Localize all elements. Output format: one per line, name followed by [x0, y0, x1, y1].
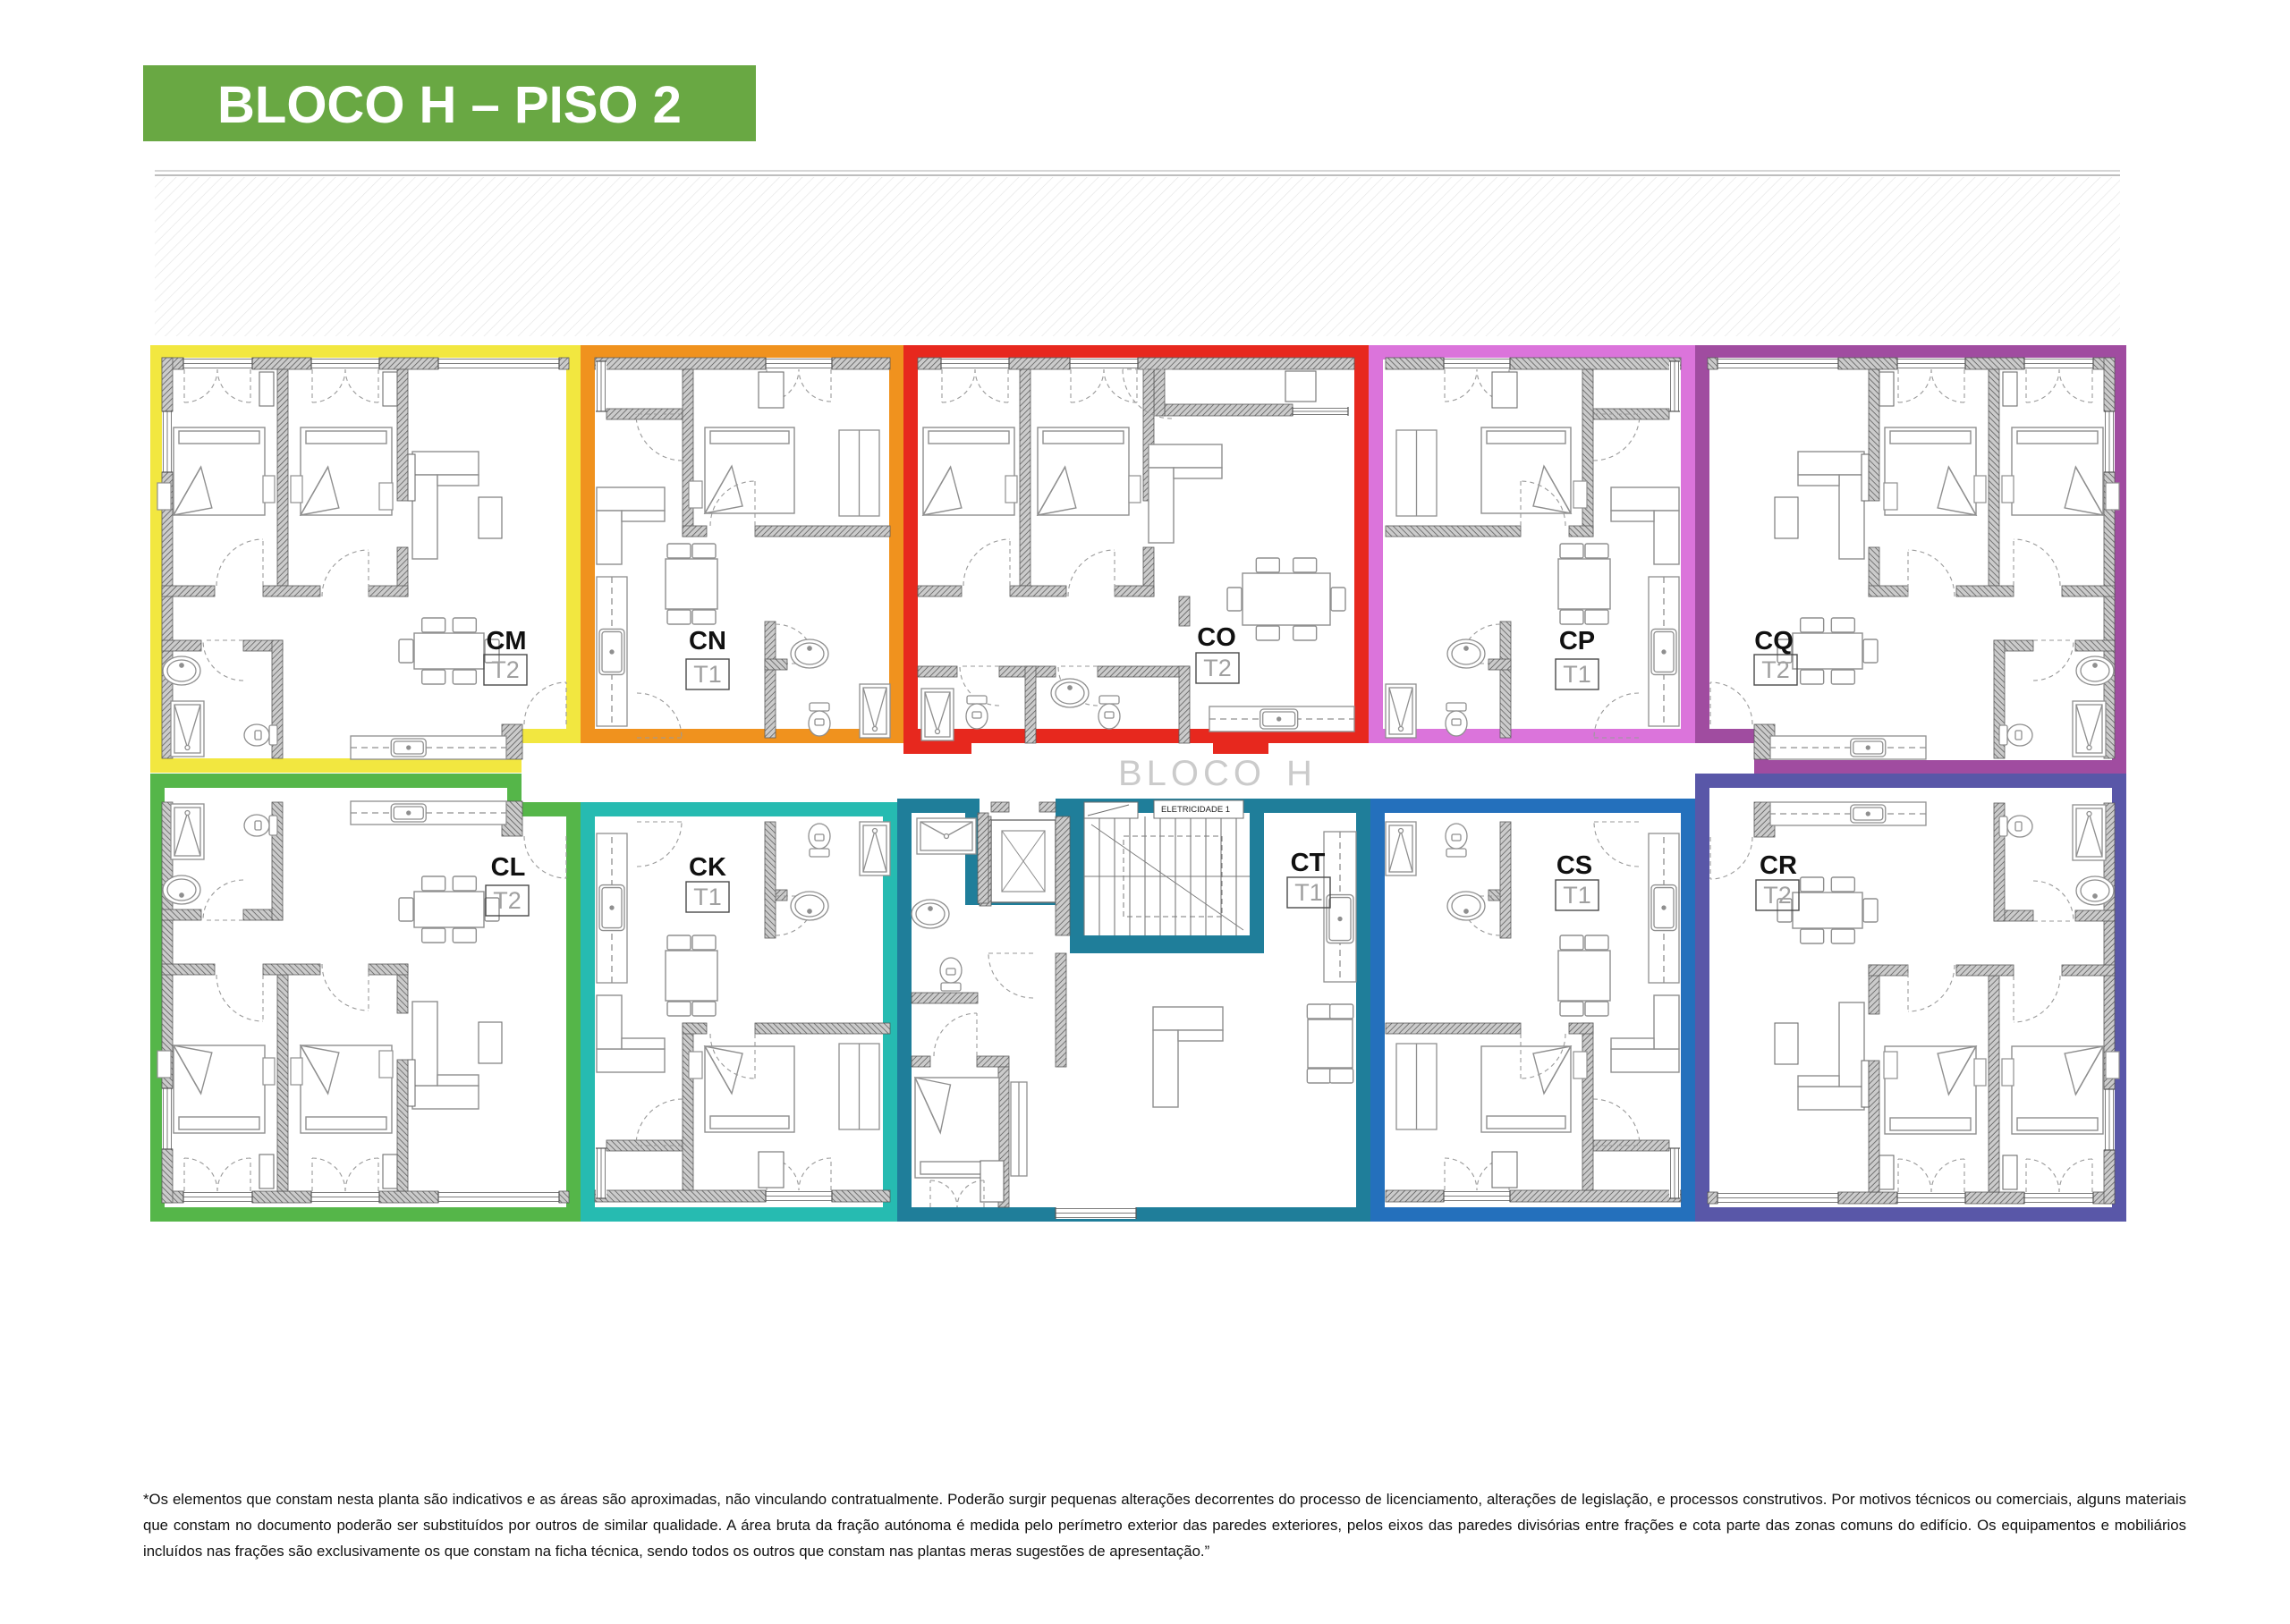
svg-text:T1: T1	[693, 661, 722, 688]
svg-text:CP: CP	[1559, 627, 1595, 656]
svg-text:T2: T2	[1203, 655, 1232, 681]
svg-text:BLOCO H – PISO 2: BLOCO H – PISO 2	[217, 76, 682, 134]
svg-text:T1: T1	[1294, 879, 1323, 906]
svg-text:T1: T1	[1563, 661, 1591, 688]
svg-text:CN: CN	[689, 627, 726, 656]
svg-text:T2: T2	[491, 656, 520, 683]
svg-text:T1: T1	[693, 884, 722, 910]
svg-text:T2: T2	[1761, 656, 1790, 683]
svg-text:CK: CK	[689, 853, 726, 882]
svg-text:ELETRICIDADE 1: ELETRICIDADE 1	[1161, 805, 1230, 815]
svg-text:CS: CS	[1556, 851, 1592, 880]
svg-text:CO: CO	[1197, 623, 1236, 652]
svg-text:T2: T2	[1763, 882, 1792, 909]
svg-text:BLOCO: BLOCO	[1118, 754, 1266, 793]
svg-text:CR: CR	[1760, 851, 1797, 880]
svg-text:CT: CT	[1291, 849, 1326, 877]
svg-text:H: H	[1286, 754, 1312, 793]
svg-text:CM: CM	[486, 627, 526, 656]
svg-text:CL: CL	[491, 853, 526, 882]
svg-text:CQ: CQ	[1754, 627, 1794, 656]
svg-text:T1: T1	[1563, 882, 1591, 909]
svg-text:T2: T2	[493, 887, 522, 914]
